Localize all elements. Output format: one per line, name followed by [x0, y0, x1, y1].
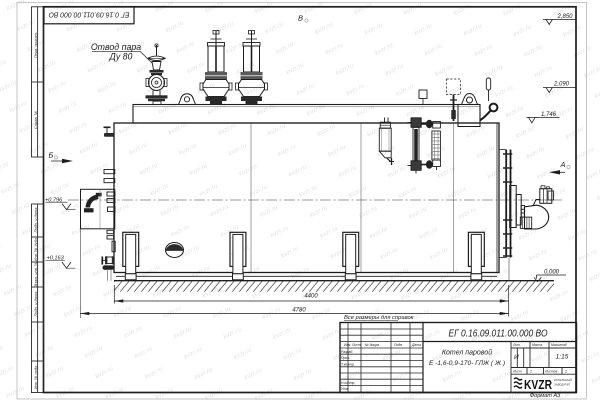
- svg-text:Инв. № подл.: Инв. № подл.: [33, 365, 38, 390]
- svg-text:Все размеры для справок: Все размеры для справок: [344, 315, 414, 321]
- svg-text:Ду 80: Ду 80: [109, 52, 133, 62]
- svg-text:ЗАВОД РЭП: ЗАВОД РЭП: [554, 383, 571, 387]
- svg-text:В: В: [298, 14, 303, 23]
- svg-text:Дата: Дата: [411, 343, 421, 347]
- svg-text:Утв.: Утв.: [341, 387, 349, 391]
- svg-text:Формат А3: Формат А3: [530, 393, 561, 399]
- svg-text:1: 1: [530, 370, 532, 374]
- svg-text:KVZR: KVZR: [524, 378, 552, 392]
- svg-text:Пров.: Пров.: [341, 356, 350, 360]
- svg-text:Взам. инв. №: Взам. инв. №: [33, 261, 38, 286]
- svg-text:Отвод пара: Отвод пара: [91, 42, 141, 52]
- svg-text:Б: Б: [49, 151, 54, 160]
- svg-text:Масса: Масса: [532, 343, 542, 347]
- svg-text:1:15: 1:15: [556, 354, 569, 361]
- svg-text:+0,163: +0,163: [47, 255, 65, 261]
- svg-text:Лит.: Лит.: [512, 343, 521, 347]
- svg-text:Котел паровой: Котел паровой: [442, 349, 492, 357]
- svg-text:ЕГ 0.16.09.011.00.000 ВО: ЕГ 0.16.09.011.00.000 ВО: [48, 10, 129, 17]
- svg-text:4780: 4780: [292, 307, 306, 313]
- svg-text:Листов: Листов: [544, 370, 558, 374]
- svg-text:4400: 4400: [304, 294, 318, 300]
- svg-text:Лист: Лист: [512, 370, 522, 374]
- svg-text:Н.контр.: Н.контр.: [341, 381, 355, 385]
- svg-text:Лист: Лист: [351, 343, 361, 347]
- svg-text:Подп.: Подп.: [394, 343, 403, 347]
- svg-text:Изм.: Изм.: [344, 343, 351, 347]
- svg-text:Подп. и дата: Подп. и дата: [33, 291, 38, 317]
- svg-text:КОТЕЛЬНЫЙ: КОТЕЛЬНЫЙ: [554, 378, 572, 382]
- svg-text:+0,796: +0,796: [45, 197, 63, 203]
- svg-text:Разраб.: Разраб.: [341, 350, 353, 354]
- svg-text:Справ. №: Справ. №: [33, 110, 38, 129]
- svg-text:ЕГ 0.16.09.011.00.000 ВО: ЕГ 0.16.09.011.00.000 ВО: [449, 328, 548, 339]
- svg-text:Масштаб: Масштаб: [551, 343, 567, 347]
- svg-text:Е -1,6-0,9-170- ГЛЖ ( Ж ): Е -1,6-0,9-170- ГЛЖ ( Ж ): [429, 360, 505, 367]
- svg-text:И: И: [514, 354, 519, 361]
- svg-text:0,000: 0,000: [544, 269, 560, 275]
- svg-text:2,850: 2,850: [557, 14, 574, 20]
- svg-text:Перв. примен.: Перв. примен.: [33, 32, 38, 59]
- svg-text:№ докум.: № докум.: [365, 343, 380, 347]
- svg-text:2: 2: [564, 370, 567, 374]
- svg-text:Т.контр.: Т.контр.: [341, 363, 355, 367]
- svg-text:А: А: [560, 160, 566, 169]
- svg-text:Подп. и дата: Подп. и дата: [33, 207, 38, 233]
- svg-text:Инв. № дубл.: Инв. № дубл.: [33, 237, 38, 262]
- svg-text:1,746: 1,746: [541, 112, 557, 118]
- svg-text:2,090: 2,090: [553, 82, 570, 88]
